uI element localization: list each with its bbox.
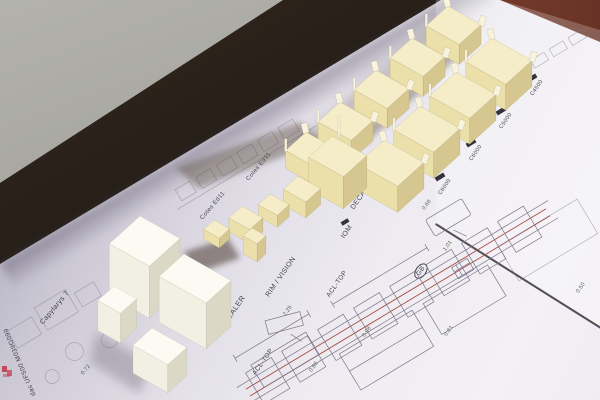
model-block — [98, 286, 137, 343]
model-block — [357, 131, 430, 213]
dim-1-01: 1.01 — [442, 240, 454, 253]
label-cotes-ed11-b: Cotes Ed11 — [199, 191, 226, 222]
photo-architectural-model-scene: Capylarys 7das UF500 M039G099DESEALERRIM… — [0, 0, 600, 400]
dim-0-66-a: 0.66 — [308, 361, 320, 374]
model-block — [258, 194, 289, 227]
label-acl-top-b: ACL-TOP — [325, 269, 348, 298]
label-acl-top-a: ACL-TOP — [251, 347, 274, 376]
label-desealer: DESEALER — [215, 294, 247, 335]
model-block — [159, 254, 231, 349]
label-gb: GB — [412, 261, 431, 281]
model-block — [243, 228, 266, 262]
drawing-red-logo-mark — [2, 366, 13, 380]
label-decaper: DECAPER — [350, 177, 377, 211]
label-rim-vision: RIM / VISION — [265, 256, 298, 299]
model-block — [109, 216, 180, 318]
dim-2-25: 2.25 — [282, 305, 294, 318]
model-block — [283, 176, 320, 218]
dim-0-81: 0.81 — [443, 325, 455, 338]
model-block — [204, 220, 230, 248]
dim-0-98: 0.98 — [361, 326, 373, 339]
dim-0-72: 0.72 — [80, 364, 92, 377]
label-uf500: das UF500 M039G099 — [3, 327, 38, 397]
label-cotes-ed11-a: Cotes Ed11 — [245, 152, 272, 183]
model-block — [133, 328, 187, 393]
label-capylarys: Capylarys 7 — [39, 290, 71, 326]
model-block — [285, 123, 343, 187]
dim-0-66-b: 0.66 — [421, 199, 433, 212]
model-block — [229, 206, 263, 244]
label-iom: IOM — [340, 224, 354, 240]
